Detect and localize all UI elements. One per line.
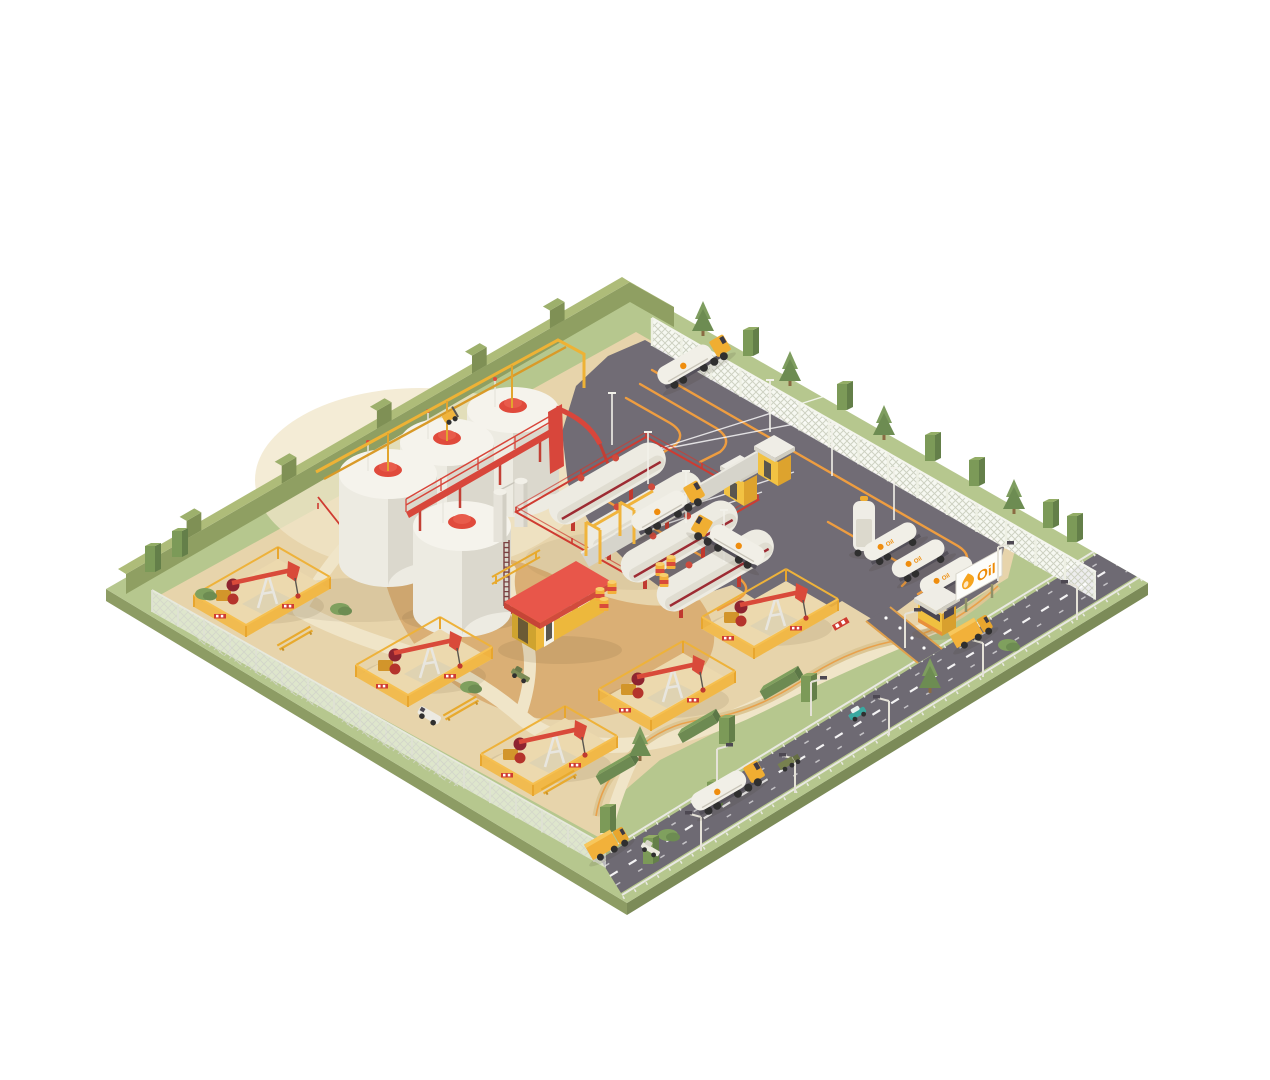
scene-canvas: Oil <box>0 0 1270 1080</box>
oil-field-illustration: Oil <box>0 0 1270 1080</box>
